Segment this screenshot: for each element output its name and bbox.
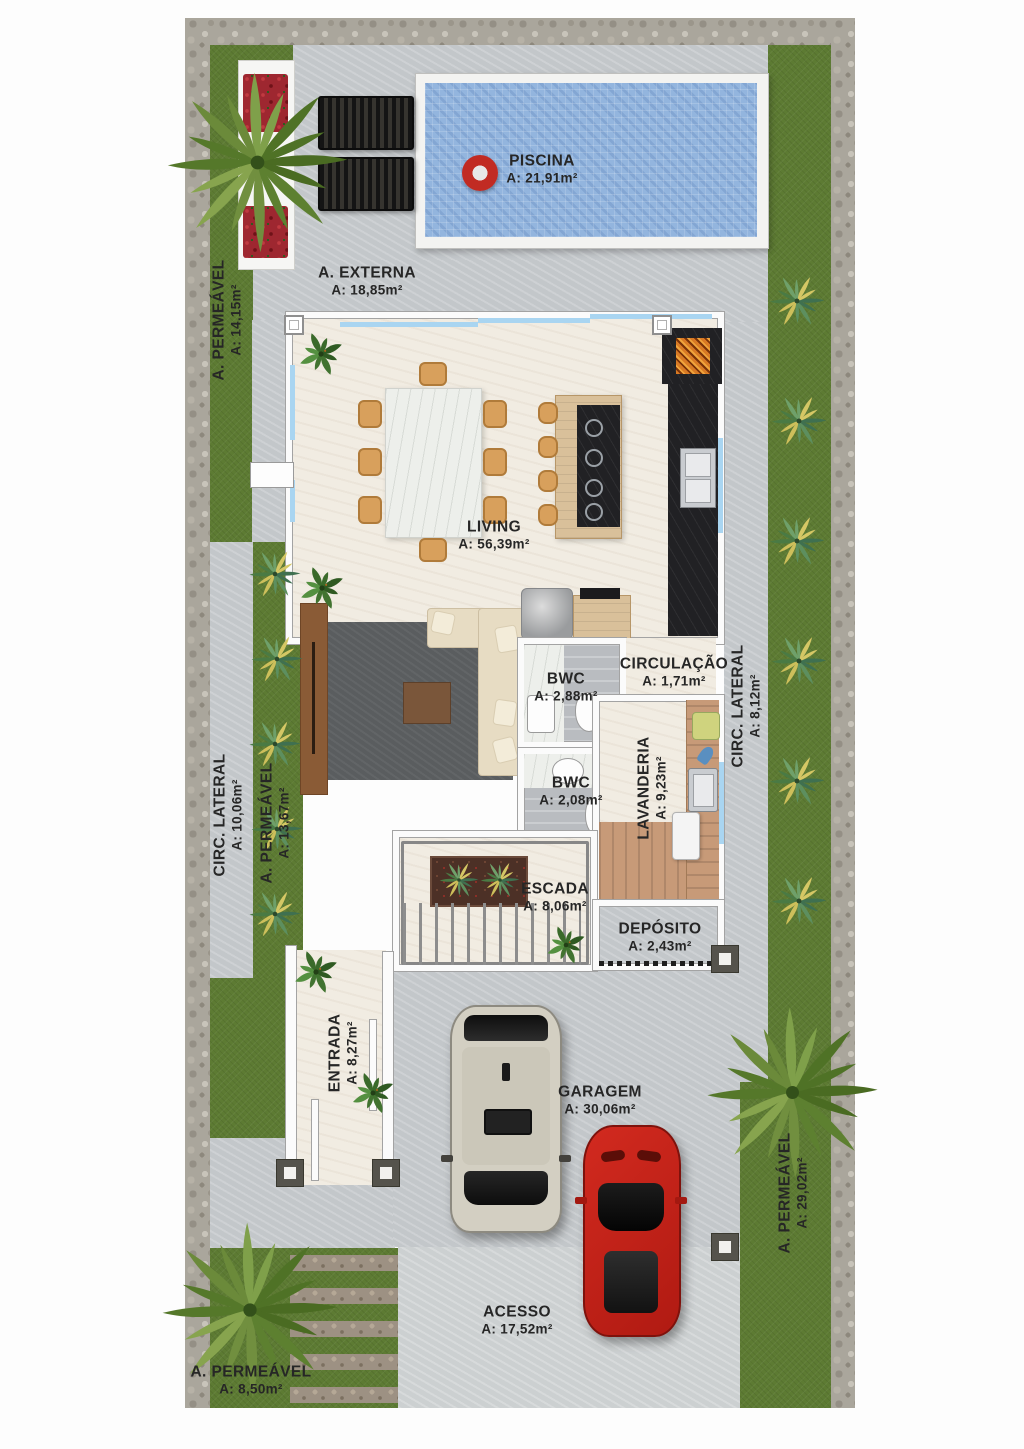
suv-rear-window bbox=[464, 1015, 548, 1041]
kitchen-window bbox=[718, 438, 723, 533]
shrub-icon bbox=[766, 510, 828, 572]
garden-entry-left bbox=[210, 978, 288, 1138]
shrub-icon bbox=[766, 270, 828, 332]
room-label-entrada: ENTRADAA: 8,27m² bbox=[327, 1014, 360, 1093]
shrub-icon bbox=[768, 390, 830, 452]
room-label-escada: ESCADAA: 8,06m² bbox=[521, 881, 589, 914]
fireplace-fire-icon bbox=[676, 338, 710, 374]
glass-door bbox=[590, 314, 712, 319]
room-label-bwc2: BWCA: 2,08m² bbox=[539, 775, 602, 808]
suv-car bbox=[450, 1005, 562, 1233]
column-marker bbox=[712, 1234, 738, 1260]
kitchen-sink bbox=[680, 448, 716, 508]
sideboard bbox=[573, 595, 631, 641]
shrub-icon bbox=[248, 630, 306, 688]
laundry-window bbox=[719, 762, 724, 844]
laundry-basket bbox=[692, 712, 720, 740]
dining-chair bbox=[419, 362, 447, 386]
dining-chair bbox=[483, 400, 507, 428]
dining-chair bbox=[358, 448, 382, 476]
suv-mirror bbox=[441, 1155, 453, 1162]
shrub-icon bbox=[478, 858, 522, 902]
suv-sunroof bbox=[484, 1109, 532, 1135]
shrub-icon bbox=[246, 885, 304, 943]
porch-column bbox=[277, 1160, 303, 1186]
shrub-icon bbox=[246, 545, 304, 603]
storage-cylinder bbox=[521, 588, 573, 640]
room-label-lavanderia: LAVANDERIAA: 9,23m² bbox=[636, 736, 669, 839]
car-mirror bbox=[675, 1197, 687, 1204]
car-rear-deck bbox=[604, 1251, 658, 1313]
dining-chair bbox=[483, 448, 507, 476]
room-label-acesso: ACESSOA: 17,52m² bbox=[481, 1304, 552, 1337]
tv-icon bbox=[312, 642, 315, 754]
dining-chair bbox=[358, 400, 382, 428]
sports-car bbox=[583, 1125, 681, 1337]
room-label-permeavel-right: A. PERMEÁVELA: 29,02m² bbox=[777, 1132, 810, 1253]
palm-tree-icon bbox=[160, 65, 355, 260]
column-marker bbox=[712, 946, 738, 972]
car-mirror bbox=[575, 1197, 587, 1204]
stone-border-top bbox=[185, 18, 855, 48]
wall-unit bbox=[250, 462, 294, 488]
laundry-sink bbox=[688, 768, 718, 812]
pool-float-icon bbox=[462, 155, 498, 191]
living-room bbox=[286, 312, 724, 644]
room-label-a-externa: A. EXTERNAA: 18,85m² bbox=[318, 265, 416, 298]
glass-door bbox=[340, 322, 478, 327]
dining-chair bbox=[419, 538, 447, 562]
room-label-bwc1: BWCA: 2,88m² bbox=[534, 671, 597, 704]
plant-icon bbox=[295, 328, 347, 380]
dining-table bbox=[385, 388, 482, 538]
column-marker bbox=[652, 315, 672, 335]
island-stool bbox=[538, 436, 558, 458]
pillow bbox=[492, 699, 517, 728]
column-marker bbox=[284, 315, 304, 335]
room-label-piscina: PISCINAA: 21,91m² bbox=[506, 153, 577, 186]
island-stool bbox=[538, 402, 558, 424]
access-driveway bbox=[398, 1247, 740, 1408]
room-label-circ-lateral-right: CIRC. LATERALA: 8,12m² bbox=[730, 645, 763, 768]
room-label-permeavel-bottom-left: A. PERMEÁVELA: 8,50m² bbox=[190, 1364, 311, 1397]
plant-icon bbox=[290, 946, 342, 998]
shrub-icon bbox=[768, 630, 830, 692]
floor-plan: PISCINAA: 21,91m² A. EXTERNAA: 18,85m² A… bbox=[0, 0, 1024, 1449]
glass-door bbox=[478, 318, 590, 323]
suv-mirror bbox=[559, 1155, 571, 1162]
island-stool bbox=[538, 504, 558, 526]
room-label-permeavel-left: A. PERMEÁVELA: 13,67m² bbox=[259, 762, 292, 883]
pillow bbox=[430, 610, 456, 636]
shrub-icon bbox=[768, 870, 830, 932]
dining-chair bbox=[358, 496, 382, 524]
plant-icon bbox=[543, 922, 589, 968]
room-label-circ-lateral-left: CIRC. LATERALA: 10,06m² bbox=[212, 754, 245, 877]
soundbar bbox=[580, 588, 620, 599]
room-label-circulacao: CIRCULAÇÃOA: 1,71m² bbox=[620, 656, 728, 689]
room-label-permeavel-top-left: A. PERMEÁVELA: 14,15m² bbox=[211, 259, 244, 380]
coffee-table bbox=[403, 682, 451, 724]
porch-column bbox=[373, 1160, 399, 1186]
shrub-icon bbox=[766, 750, 828, 812]
island-stool bbox=[538, 470, 558, 492]
suv-windshield bbox=[464, 1171, 548, 1205]
porch-screen-wall bbox=[312, 1100, 318, 1180]
stone-border-right bbox=[831, 18, 855, 1408]
cooktop bbox=[577, 405, 620, 527]
car-windshield bbox=[598, 1183, 664, 1231]
washing-machine bbox=[672, 812, 700, 860]
shrub-icon bbox=[437, 858, 481, 902]
room-label-garagem: GARAGEMA: 30,06m² bbox=[558, 1084, 642, 1117]
pillow bbox=[494, 624, 520, 653]
room-label-deposito: DEPÓSITOA: 2,43m² bbox=[618, 921, 701, 954]
gate-dashed-line bbox=[599, 961, 711, 966]
room-label-living: LIVINGA: 56,39m² bbox=[458, 519, 529, 552]
